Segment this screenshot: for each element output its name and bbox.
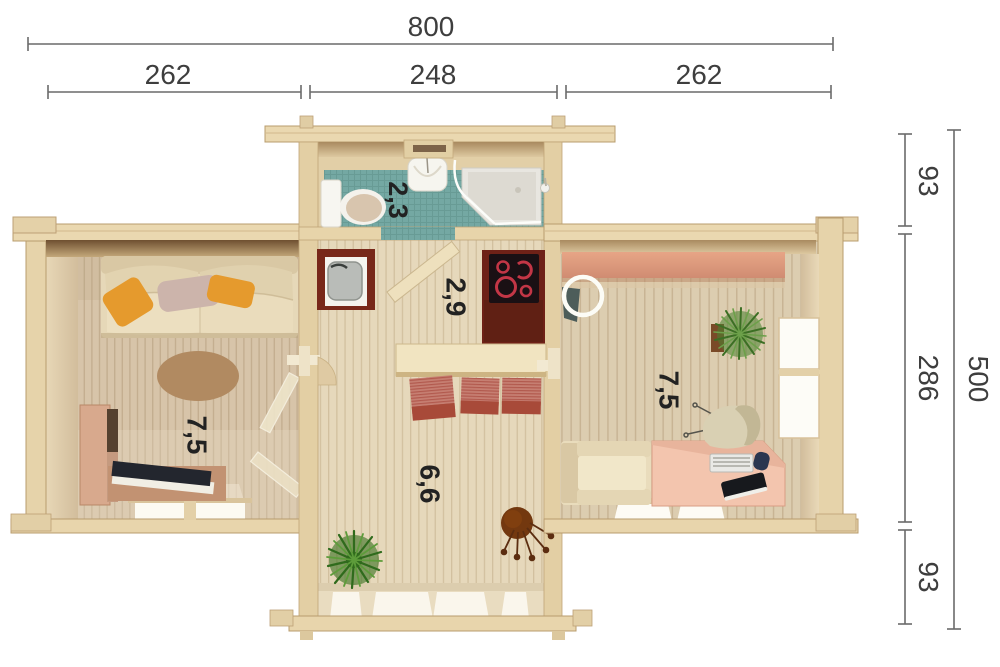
svg-text:248: 248 <box>410 59 457 90</box>
svg-text:93: 93 <box>913 561 944 592</box>
svg-text:6,6: 6,6 <box>415 465 446 504</box>
svg-text:2,3: 2,3 <box>383 181 413 219</box>
svg-text:7,5: 7,5 <box>654 371 685 410</box>
svg-text:93: 93 <box>913 165 944 196</box>
svg-text:800: 800 <box>408 11 455 42</box>
svg-text:7,5: 7,5 <box>182 416 213 455</box>
svg-text:262: 262 <box>676 59 723 90</box>
svg-text:286: 286 <box>913 355 944 402</box>
svg-text:2,9: 2,9 <box>441 278 472 317</box>
svg-text:262: 262 <box>145 59 192 90</box>
svg-text:500: 500 <box>963 356 994 403</box>
